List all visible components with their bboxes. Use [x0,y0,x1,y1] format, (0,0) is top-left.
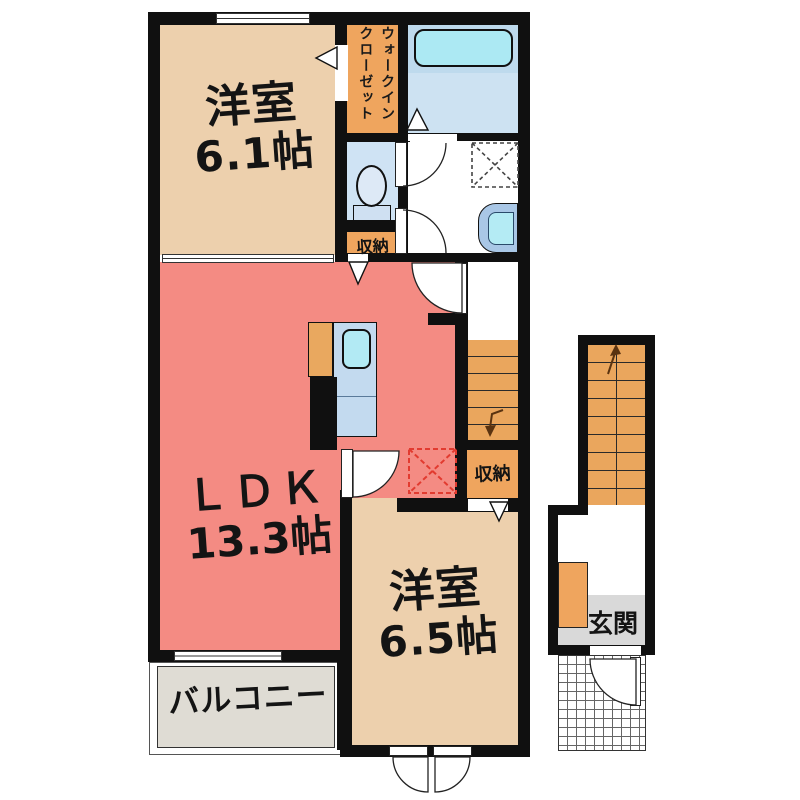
storage-lower-label: 収納 [466,459,518,488]
stair-direction-arrows [485,344,621,437]
bedroom2-window-arc-left [393,757,428,792]
washroom-door-arc [403,210,446,253]
storage-upper-name: 収納 [356,236,389,257]
external-stairs-arrow [608,353,615,374]
storage-lower-name: 収納 [474,463,511,486]
floor-plan: 洋室 6.1帖 ＬＤＫ 13.3帖 洋室 6.5帖 バルコニー 玄関 収納 収納… [0,0,800,800]
bedroom2-door-arc [353,451,399,497]
bedroom1-door-triangle [316,47,337,69]
internal-stairs-arrow [490,410,503,428]
storage-lower-triangle [490,502,508,521]
bath-door-triangle [407,109,428,130]
ldk-label: ＬＤＫ 13.3帖 [165,462,351,570]
toilet-door-arc [403,143,446,186]
wic-line2: クローゼット [354,26,376,134]
bedroom1-name: 洋室 [204,75,299,134]
entrance-label: 玄関 [582,604,644,640]
bedroom2-name: 洋室 [388,560,483,619]
symbol-overlay [0,0,800,800]
hall-door-arc [412,263,462,313]
external-stairs-arrowhead [610,344,621,356]
entrance-name: 玄関 [588,609,638,638]
internal-stairs-arrowhead [485,425,496,437]
walk-in-closet-label: ウォークイン クローゼット [351,26,397,134]
bedroom1-label: 洋室 6.1帖 [165,74,341,183]
storage-upper-triangle [349,262,368,284]
washing-machine-area [472,143,518,187]
wic-line1: ウォークイン [375,26,397,134]
bedroom2-window-arc-right [435,757,470,792]
entrance-door-arc [590,659,636,705]
refrigerator-area [409,449,456,493]
storage-upper-label: 収納 [346,232,398,259]
bedroom2-label: 洋室 6.5帖 [349,559,525,668]
